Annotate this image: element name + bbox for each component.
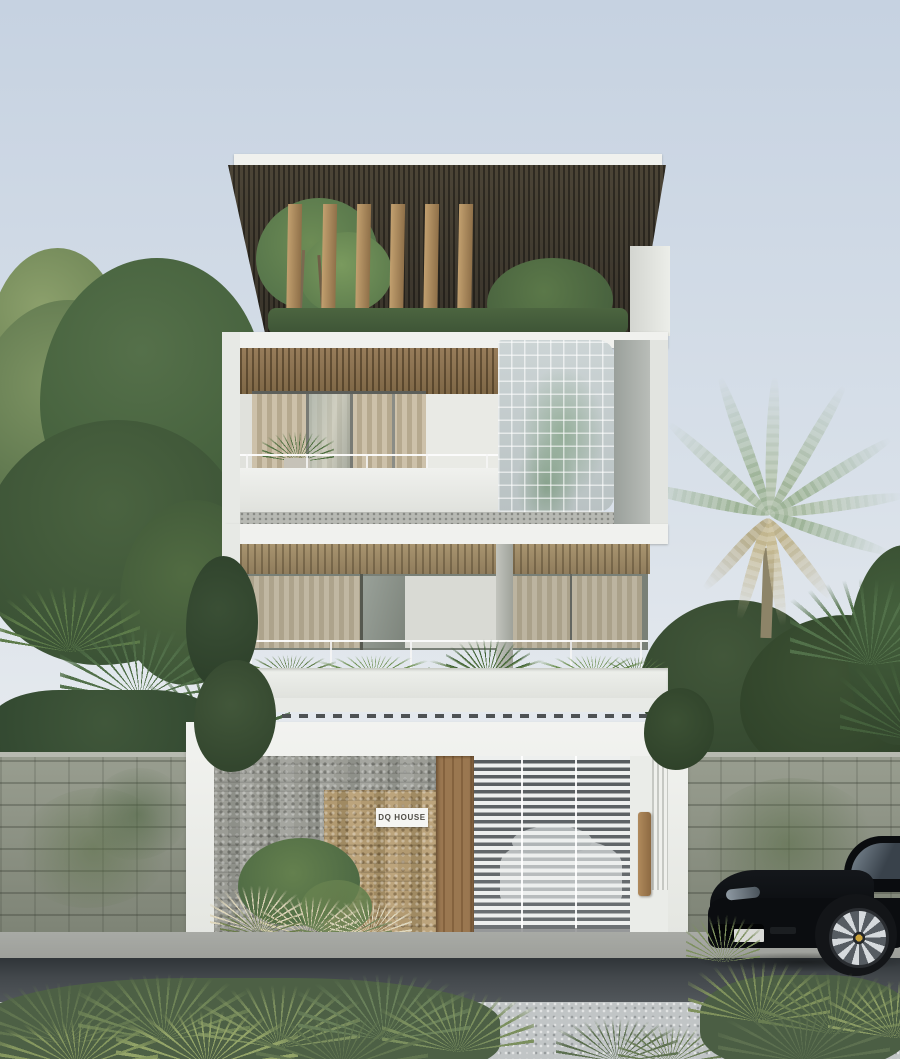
balcony-ceiling [240, 544, 650, 574]
balcony-railing [240, 454, 498, 456]
window-mullion [360, 574, 363, 650]
door-seam [575, 756, 577, 936]
garage-door [474, 756, 630, 936]
glass-block-wall [498, 340, 614, 512]
grass-clump [220, 896, 302, 936]
terrace-hedge [268, 308, 628, 334]
door-handle [638, 812, 651, 896]
window-curtain [512, 576, 642, 648]
window-curtain [244, 576, 362, 648]
shrub [256, 994, 428, 1059]
side-wall [614, 340, 650, 524]
garage-door-slats [474, 756, 630, 936]
floor-slab [226, 524, 668, 544]
door-seam [521, 756, 523, 936]
slab-face [226, 698, 668, 712]
roof-fascia [234, 154, 662, 166]
entry-panel [630, 756, 668, 936]
balcony-parapet [240, 468, 498, 514]
shrub [718, 988, 890, 1059]
architectural-photo: DQ HOUSE [0, 0, 900, 1059]
shrub [0, 1000, 158, 1059]
wall-edge [222, 332, 240, 528]
window-mullion [392, 394, 395, 468]
window-mullion [350, 394, 353, 468]
parapet-stone-strip [240, 512, 614, 524]
balcony-railing [240, 640, 648, 642]
wall-edge [650, 340, 668, 524]
fog-intake [770, 927, 796, 934]
garage-interior: DQ HOUSE [214, 756, 668, 936]
house-sign: DQ HOUSE [376, 808, 428, 827]
house-sign-text: DQ HOUSE [378, 813, 425, 822]
window-band [240, 574, 648, 650]
planter-box [226, 668, 668, 698]
wood-entry-door [436, 756, 474, 936]
balcony-ceiling [240, 348, 498, 394]
panel-slats [652, 756, 668, 890]
vent-strip [248, 714, 652, 718]
rooftop-parapet [630, 246, 670, 336]
window-mullion [570, 574, 572, 650]
